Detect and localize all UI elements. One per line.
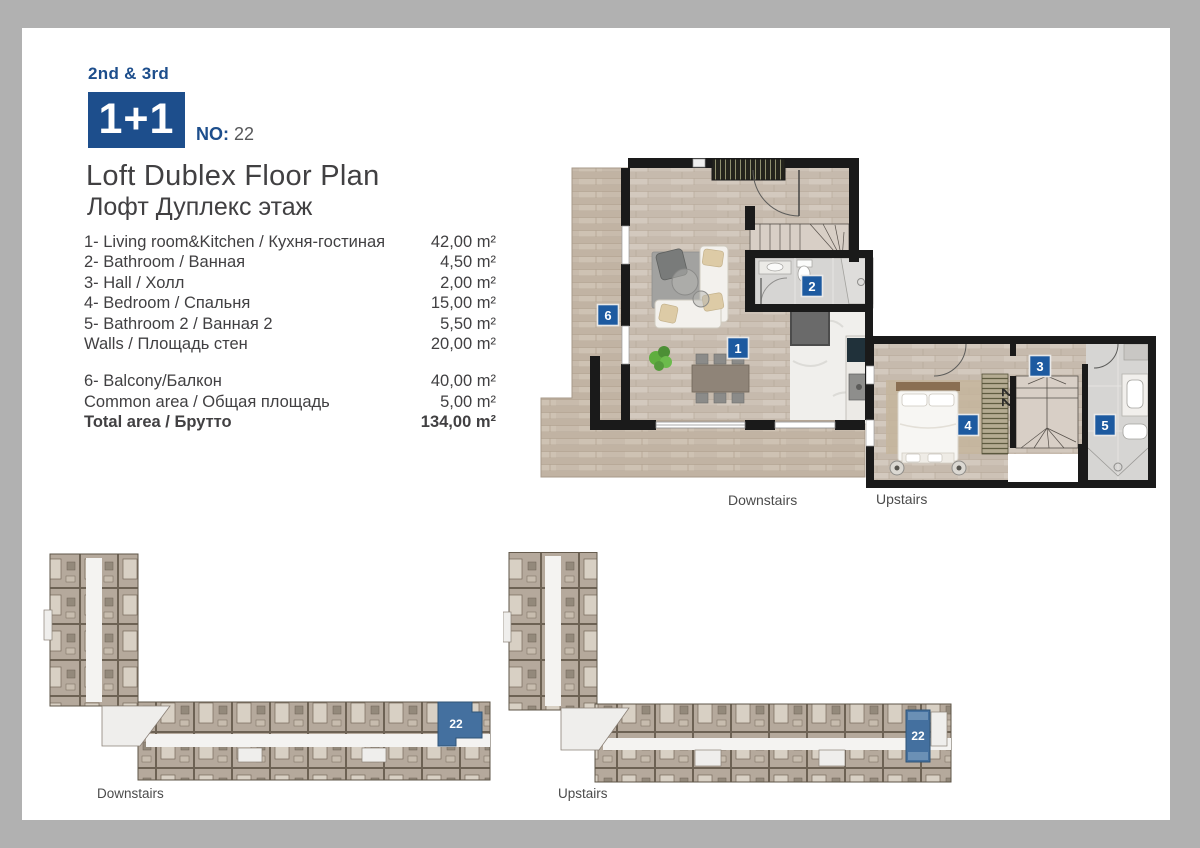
room-badge-bathroom2: 5 bbox=[1095, 415, 1116, 436]
no-label: NO: bbox=[196, 124, 229, 144]
area-table: 1- Living room&Kitchen / Кухня-гостиная4… bbox=[84, 232, 496, 433]
area-row: 5- Bathroom 2 / Ванная 25,50 m² bbox=[84, 314, 496, 334]
room-badge-balcony: 6 bbox=[598, 305, 619, 326]
unit-number: 22 bbox=[234, 124, 254, 144]
overview-downstairs-label: Downstairs bbox=[97, 786, 164, 801]
room-badge-bedroom: 4 bbox=[958, 415, 979, 436]
page-title: Loft Dublex Floor Plan bbox=[86, 160, 380, 193]
area-row: 3- Hall / Холл2,00 m² bbox=[84, 273, 496, 293]
area-row: 2- Bathroom / Ванная4,50 m² bbox=[84, 252, 496, 272]
svg-text:6: 6 bbox=[604, 308, 611, 323]
room-badge-living: 1 bbox=[728, 338, 749, 359]
brochure-page: 2nd & 3rd 1+1 NO:22 Loft Dublex Floor Pl… bbox=[22, 28, 1170, 820]
downstairs-plan-label: Downstairs bbox=[728, 492, 797, 508]
svg-text:4: 4 bbox=[964, 418, 972, 433]
room-badge-hall: 3 bbox=[1030, 356, 1051, 377]
area-row: Common area / Общая площадь5,00 m² bbox=[84, 392, 496, 412]
highlighted-unit-number: 22 bbox=[911, 729, 925, 743]
overview-upstairs-label: Upstairs bbox=[558, 786, 608, 801]
building-overview-downstairs: 22 bbox=[42, 552, 492, 787]
upstairs-plan-label: Upstairs bbox=[876, 491, 927, 507]
total-area-row: Total area / Брутто134,00 m² bbox=[84, 412, 496, 432]
unit-number-line: NO:22 bbox=[196, 124, 254, 145]
area-row: Walls / Площадь стен20,00 m² bbox=[84, 334, 496, 354]
room-badge-bathroom: 2 bbox=[802, 276, 823, 297]
highlighted-unit-number: 22 bbox=[449, 717, 463, 731]
svg-text:5: 5 bbox=[1101, 418, 1108, 433]
area-row: 6- Balcony/Балкон40,00 m² bbox=[84, 371, 496, 391]
unit-type-badge: 1+1 bbox=[88, 92, 185, 148]
page-title-ru: Лофт Дуплекс этаж bbox=[87, 193, 312, 222]
floor-range-label: 2nd & 3rd bbox=[88, 64, 169, 84]
svg-text:2: 2 bbox=[808, 279, 815, 294]
area-row: 1- Living room&Kitchen / Кухня-гостиная4… bbox=[84, 232, 496, 252]
area-row: 4- Bedroom / Спальня15,00 m² bbox=[84, 293, 496, 313]
building-overview-upstairs: 22 bbox=[503, 552, 953, 787]
upstairs-floor-plan: 22 3 4 bbox=[866, 336, 1156, 488]
svg-text:3: 3 bbox=[1036, 359, 1043, 374]
downstairs-floor-plan: 6 1 2 bbox=[533, 146, 877, 492]
svg-text:1: 1 bbox=[734, 341, 741, 356]
